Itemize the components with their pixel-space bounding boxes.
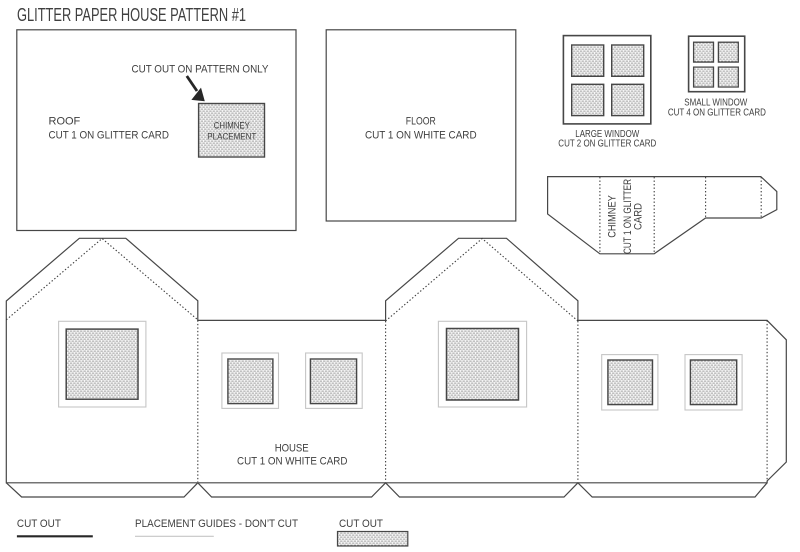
svg-text:PLACEMENT: PLACEMENT <box>207 132 256 142</box>
svg-text:PLACEMENT GUIDES - DON’T CUT: PLACEMENT GUIDES - DON’T CUT <box>135 518 298 530</box>
svg-text:CUT OUT ON PATTERN ONLY: CUT OUT ON PATTERN ONLY <box>132 63 270 75</box>
svg-text:CHIMNEY: CHIMNEY <box>607 195 619 238</box>
svg-text:CUT 1 ON WHITE CARD: CUT 1 ON WHITE CARD <box>365 130 477 142</box>
svg-text:CUT 4 ON GLITTER CARD: CUT 4 ON GLITTER CARD <box>668 108 766 119</box>
svg-text:CUT OUT: CUT OUT <box>339 518 383 530</box>
svg-text:CUT OUT: CUT OUT <box>17 518 61 530</box>
svg-text:GLITTER PAPER HOUSE PATTERN #1: GLITTER PAPER HOUSE PATTERN #1 <box>17 5 246 25</box>
svg-text:FLOOR: FLOOR <box>406 116 436 128</box>
svg-text:ROOF: ROOF <box>49 116 81 128</box>
svg-text:CUT 1 ON GLITTER CARD: CUT 1 ON GLITTER CARD <box>49 129 170 141</box>
svg-text:CUT 2 ON GLITTER CARD: CUT 2 ON GLITTER CARD <box>558 139 656 150</box>
svg-text:CARD: CARD <box>633 203 645 230</box>
svg-text:CUT 1 ON WHITE CARD: CUT 1 ON WHITE CARD <box>237 456 347 468</box>
svg-text:HOUSE: HOUSE <box>275 443 309 455</box>
svg-text:CHIMNEY: CHIMNEY <box>214 120 250 130</box>
